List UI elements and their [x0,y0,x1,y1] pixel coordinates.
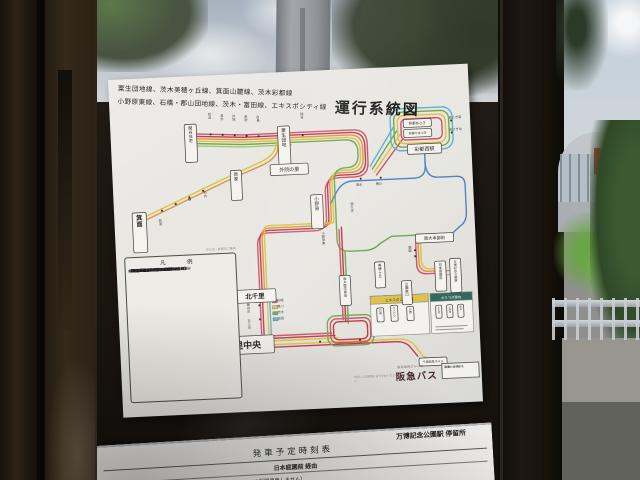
contact-line2: 阪急バス(株) [444,364,460,369]
guardrail-posts [552,298,640,340]
road-shadow [562,402,640,480]
timetable-stop-name: 万博記念公園駅 停留所 [396,427,466,441]
stop-tick [258,135,260,137]
stop-tick [210,133,212,135]
stop-tick [414,255,416,257]
micro-stop-label: 清水 [356,182,363,187]
stop-tick [414,249,416,251]
stop-tick [259,318,261,320]
station-label: 彩都西駅 [414,145,434,153]
micro-stop-label: 茨木 [277,309,284,314]
micro-stop-label: 稲 [188,196,191,201]
station-label: 箕面 [135,214,143,229]
stop-tick [246,135,248,137]
stop-tick [359,339,361,341]
micro-stop-label: 牧落 [159,218,163,227]
route-loop [333,320,368,340]
trunk-reflection [58,70,72,330]
micro-stop-label: 石橋 [277,297,284,302]
guardrail [552,298,640,340]
poster-main-title: 運行系統図 [334,97,420,120]
station-label: 間谷住宅 [188,124,193,143]
stop-tick [175,203,177,205]
legend-box: 凡 例 【粟生団地線】19 千里中央〜外院の里〜粟生団地19 千里中央〜小野原〜… [124,252,243,403]
micro-stop-label: 豊川 [277,303,284,308]
tree [556,0,608,90]
micro-stop-label: 小野原東 [321,230,326,245]
stop-tick [234,134,236,136]
publisher-logo: 阪急バス [395,367,438,383]
micro-stop-label: 豊川 [376,181,383,186]
micro-stop-label: 庭園 [408,244,412,253]
stop-tick [319,341,321,343]
stop-tick [161,210,163,212]
case-frame-left-post [0,0,37,480]
frame-highlight [500,0,503,480]
route-line [421,242,435,269]
micro-stop-label: あさぎ北 [449,126,463,132]
station-label: 彩都やまぶき [409,130,427,136]
ground-reflection [48,360,97,480]
stop-tick [360,178,362,180]
micro-stop-label: 石丸 [204,191,208,199]
route-line [425,160,467,234]
poster-title-line2: 小野原東線、石橋・郡山団地線、茨木・富田線、エキスポシティ線 [117,96,326,112]
station-label: 彩都あさぎ [409,120,427,126]
inset-header: のりつぎ案内 [441,294,462,300]
legend-color-chip [129,270,131,272]
bus-stop-photo: エキスポシティ線のりつぎ案内箕面間谷住宅粟生団地外院の里新家小野原彩都西駅彩都あ… [0,0,640,480]
micro-stop-label: 宿久庄 [350,201,355,213]
case-frame-gap [37,0,45,480]
stop-tick [451,132,453,134]
stop-tick [222,134,224,136]
leaves-reflection [95,0,175,52]
micro-stop-label: 富田 [278,315,285,320]
micro-stop-label: 古江台 [247,318,252,330]
outdoor-scene [564,0,640,480]
contact-box: お問い合わせ先 阪急バス(株) [441,361,480,379]
route-line [144,145,281,219]
micro-stop-label: 藤白台 [247,302,252,314]
route-line [143,142,280,216]
route-map-poster: エキスポシティ線のりつぎ案内箕面間谷住宅粟生団地外院の里新家小野原彩都西駅彩都あ… [108,64,483,418]
station-label: 外院の里 [279,166,299,174]
stop-tick [258,304,260,306]
stop-tick [302,134,304,136]
stop-tick [380,177,382,179]
